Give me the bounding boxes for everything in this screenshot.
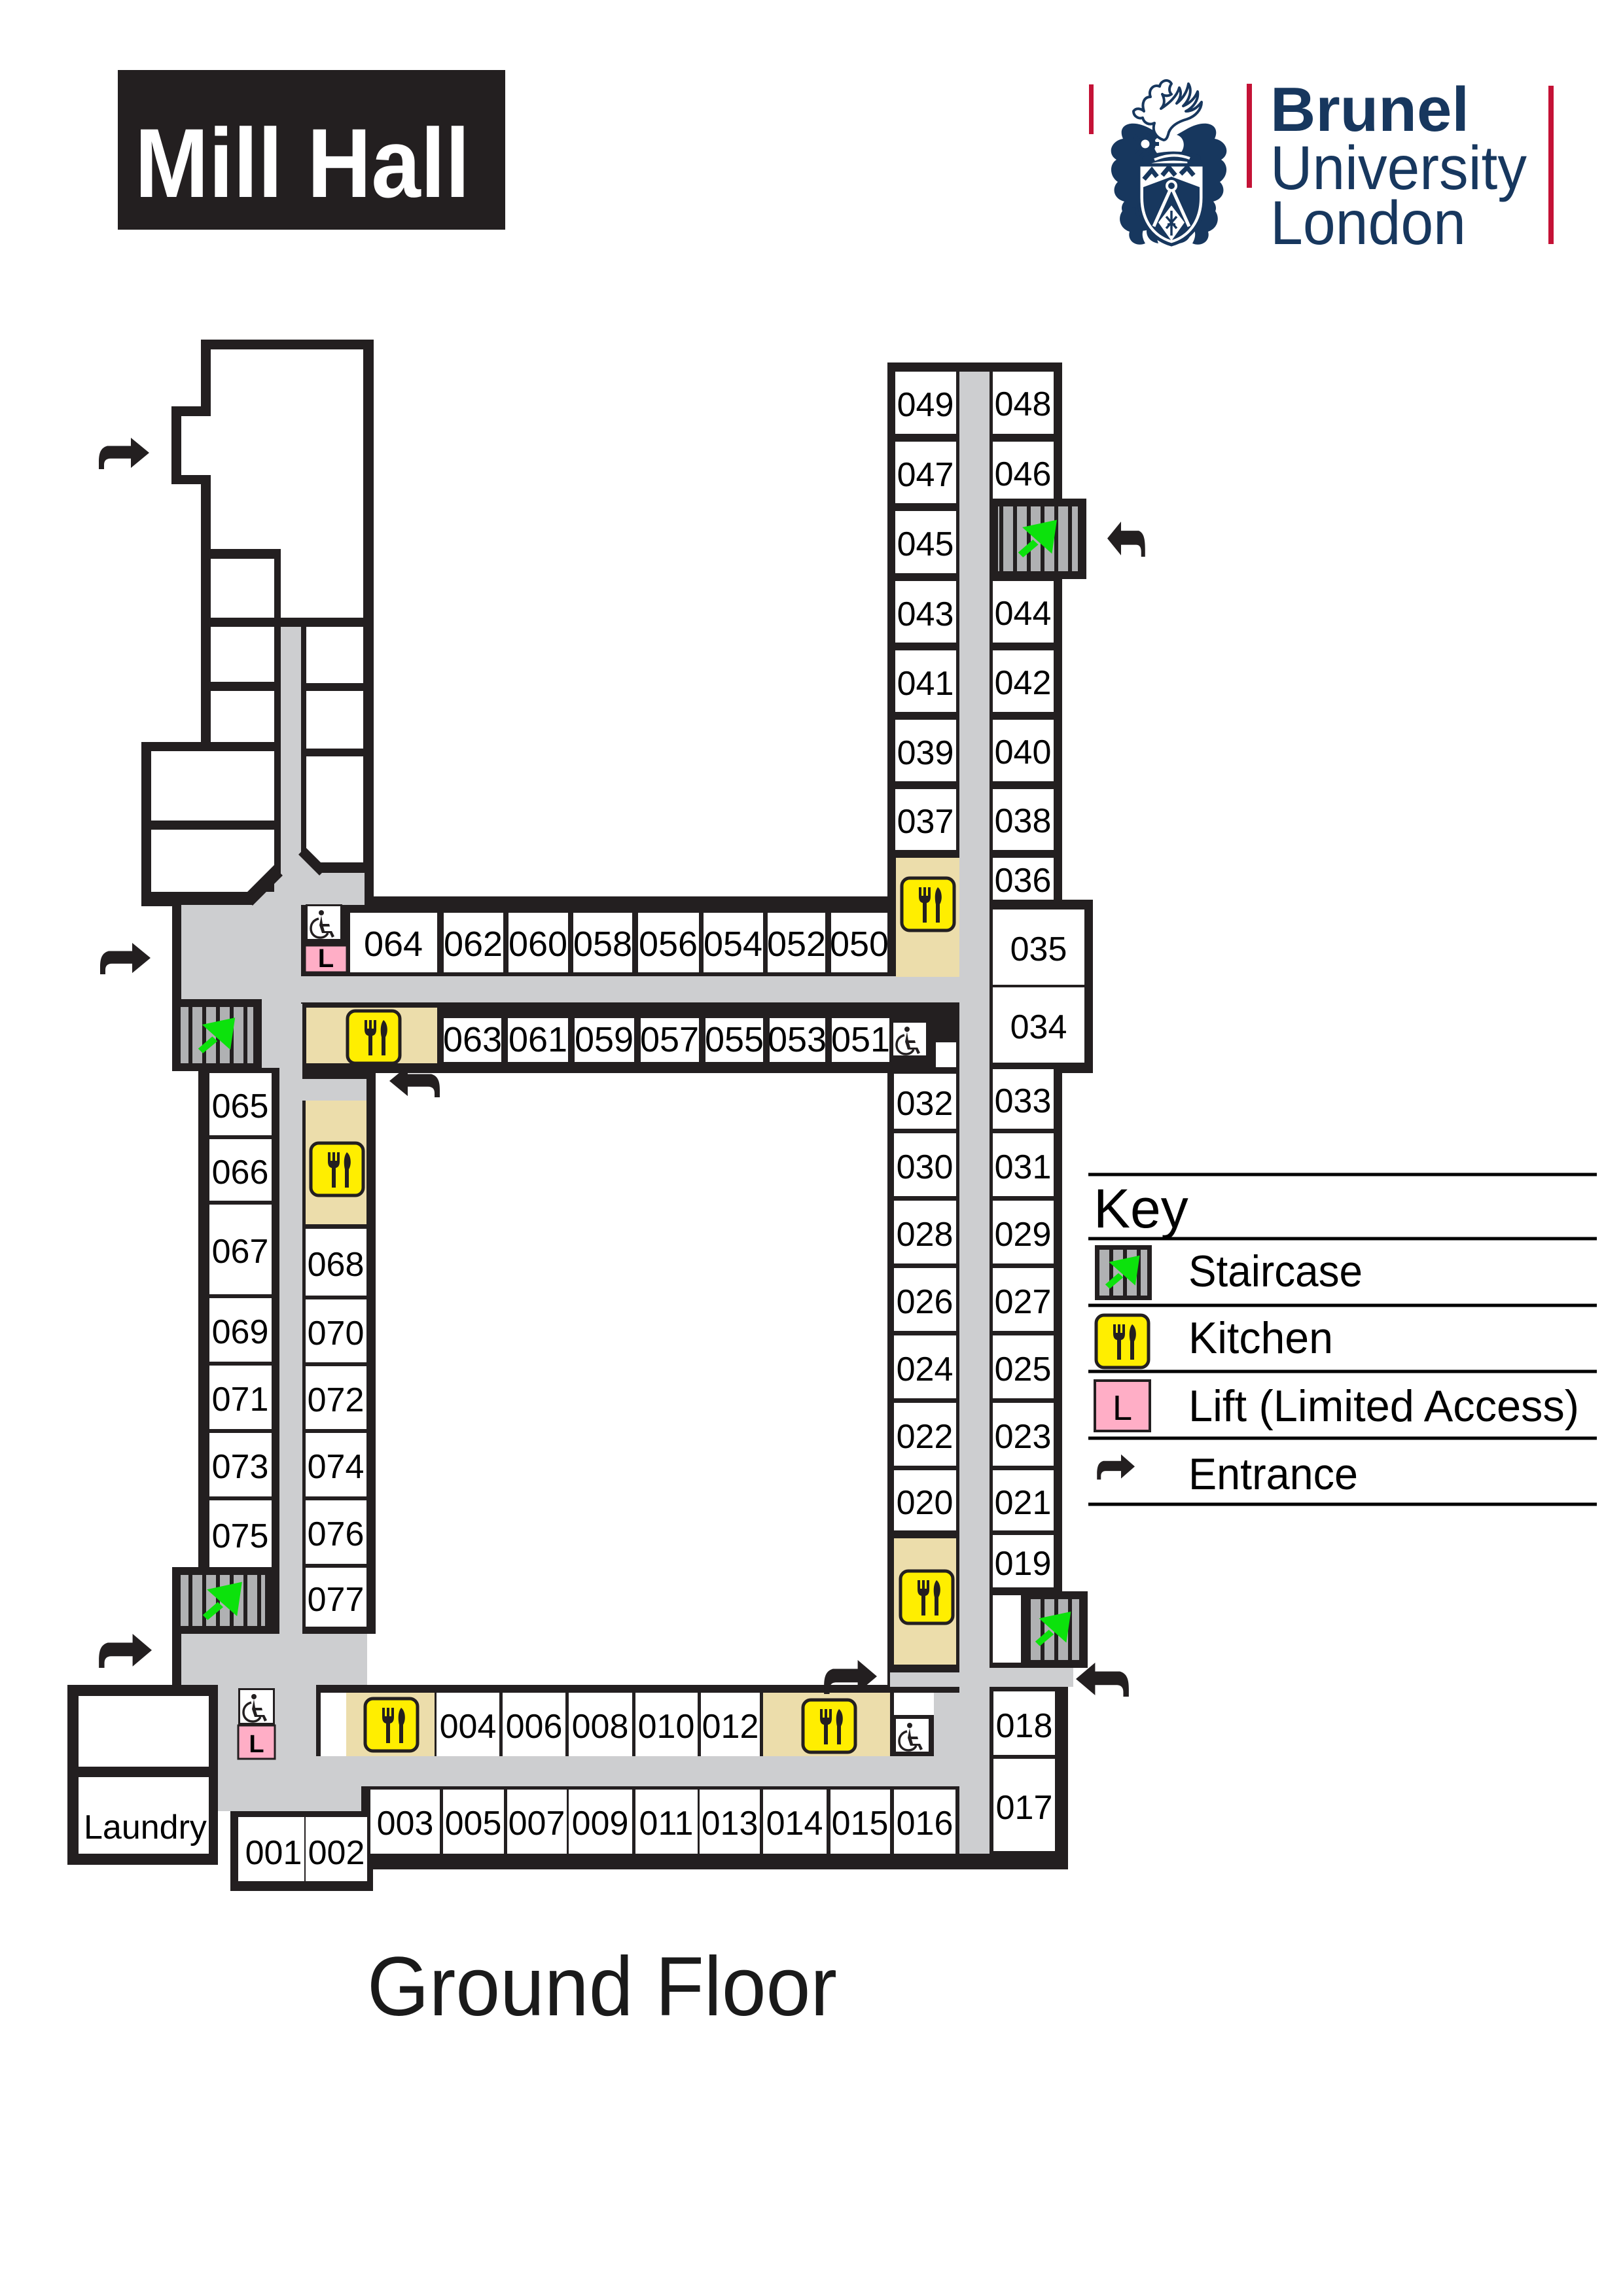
svg-text:017: 017 [996,1789,1053,1827]
svg-text:036: 036 [995,862,1052,900]
svg-text:042: 042 [995,664,1052,702]
svg-text:Lift (Limited Access): Lift (Limited Access) [1188,1381,1579,1431]
svg-text:011: 011 [639,1805,694,1843]
svg-text:064: 064 [364,925,423,964]
svg-text:008: 008 [572,1708,629,1746]
svg-text:053: 053 [768,1020,827,1059]
svg-text:077: 077 [308,1581,365,1619]
svg-text:010: 010 [638,1708,695,1746]
svg-text:Mill Hall: Mill Hall [135,108,470,218]
svg-text:065: 065 [212,1087,269,1125]
svg-text:070: 070 [308,1315,365,1352]
svg-text:009: 009 [572,1805,629,1843]
svg-text:003: 003 [377,1805,434,1843]
svg-text:021: 021 [995,1484,1052,1522]
svg-text:073: 073 [212,1448,269,1486]
svg-text:038: 038 [995,802,1052,840]
svg-text:076: 076 [308,1515,365,1553]
svg-text:031: 031 [995,1148,1052,1186]
svg-text:061: 061 [508,1020,567,1059]
svg-text:001: 001 [245,1834,302,1872]
svg-text:072: 072 [308,1381,365,1419]
svg-text:020: 020 [897,1484,954,1522]
svg-text:040: 040 [995,733,1052,771]
svg-text:023: 023 [995,1418,1052,1456]
svg-text:024: 024 [897,1351,954,1388]
svg-text:028: 028 [897,1216,954,1254]
svg-text:052: 052 [767,925,826,964]
svg-text:Laundry: Laundry [84,1809,207,1846]
svg-text:032: 032 [897,1085,954,1123]
svg-text:035: 035 [1010,930,1067,968]
svg-text:034: 034 [1010,1008,1067,1046]
svg-text:033: 033 [995,1082,1052,1120]
svg-text:022: 022 [897,1418,954,1456]
svg-text:015: 015 [832,1805,889,1843]
svg-text:027: 027 [995,1283,1052,1321]
svg-text:026: 026 [897,1283,954,1321]
svg-text:Entrance: Entrance [1188,1449,1358,1499]
svg-text:005: 005 [445,1805,502,1843]
svg-text:041: 041 [897,665,954,703]
svg-text:L: L [1113,1388,1132,1428]
svg-text:037: 037 [897,803,954,841]
svg-text:044: 044 [995,595,1052,633]
svg-text:002: 002 [308,1834,365,1872]
svg-text:074: 074 [308,1448,365,1486]
svg-text:071: 071 [212,1381,269,1419]
svg-text:012: 012 [702,1708,759,1746]
svg-text:014: 014 [766,1805,823,1843]
svg-text:L: L [318,944,334,973]
svg-text:056: 056 [639,925,698,964]
svg-text:London: London [1270,188,1466,258]
svg-text:047: 047 [897,456,954,494]
svg-text:007: 007 [508,1805,565,1843]
svg-text:075: 075 [212,1517,269,1555]
svg-text:062: 062 [444,925,503,964]
svg-text:049: 049 [897,386,954,424]
svg-text:Ground Floor: Ground Floor [367,1940,837,2034]
svg-text:013: 013 [702,1805,758,1843]
svg-text:Key: Key [1094,1178,1188,1239]
svg-text:051: 051 [831,1020,890,1059]
svg-text:029: 029 [995,1216,1052,1254]
svg-text:063: 063 [443,1020,502,1059]
svg-text:048: 048 [995,385,1052,423]
svg-text:Kitchen: Kitchen [1188,1313,1333,1363]
svg-text:019: 019 [995,1545,1052,1583]
svg-text:068: 068 [308,1246,365,1284]
svg-text:L: L [249,1731,264,1758]
svg-text:018: 018 [996,1707,1053,1745]
svg-text:039: 039 [897,734,954,772]
svg-text:004: 004 [440,1708,497,1746]
svg-text:055: 055 [705,1020,764,1059]
svg-text:054: 054 [704,925,762,964]
svg-text:045: 045 [897,525,954,563]
svg-text:043: 043 [897,595,954,633]
svg-text:058: 058 [573,925,632,964]
svg-text:066: 066 [212,1154,269,1192]
svg-text:025: 025 [995,1351,1052,1388]
svg-text:060: 060 [508,925,567,964]
svg-text:016: 016 [897,1805,954,1843]
svg-text:069: 069 [212,1313,269,1351]
svg-text:067: 067 [212,1233,269,1271]
svg-text:Staircase: Staircase [1188,1246,1363,1296]
svg-text:059: 059 [575,1020,633,1059]
svg-text:050: 050 [830,925,889,964]
svg-text:030: 030 [897,1148,954,1186]
svg-text:046: 046 [995,455,1052,493]
svg-text:057: 057 [640,1020,699,1059]
svg-text:006: 006 [506,1708,563,1746]
